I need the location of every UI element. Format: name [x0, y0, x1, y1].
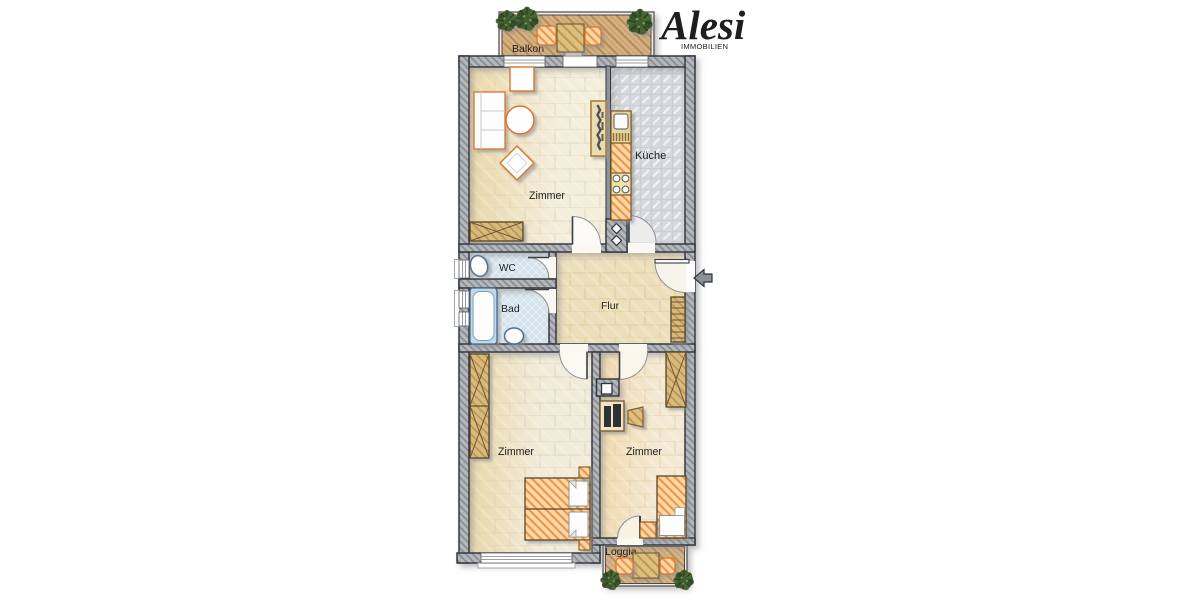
- svg-text:WC: WC: [499, 263, 516, 274]
- svg-text:Flur: Flur: [601, 300, 620, 312]
- svg-text:Loggia: Loggia: [605, 546, 637, 558]
- svg-text:Zimmer: Zimmer: [529, 190, 565, 202]
- svg-text:Zimmer: Zimmer: [498, 446, 534, 458]
- svg-text:IMMOBILIEN: IMMOBILIEN: [681, 42, 728, 51]
- svg-text:Küche: Küche: [635, 150, 666, 162]
- svg-text:Zimmer: Zimmer: [626, 446, 662, 458]
- svg-text:Bad: Bad: [501, 303, 520, 315]
